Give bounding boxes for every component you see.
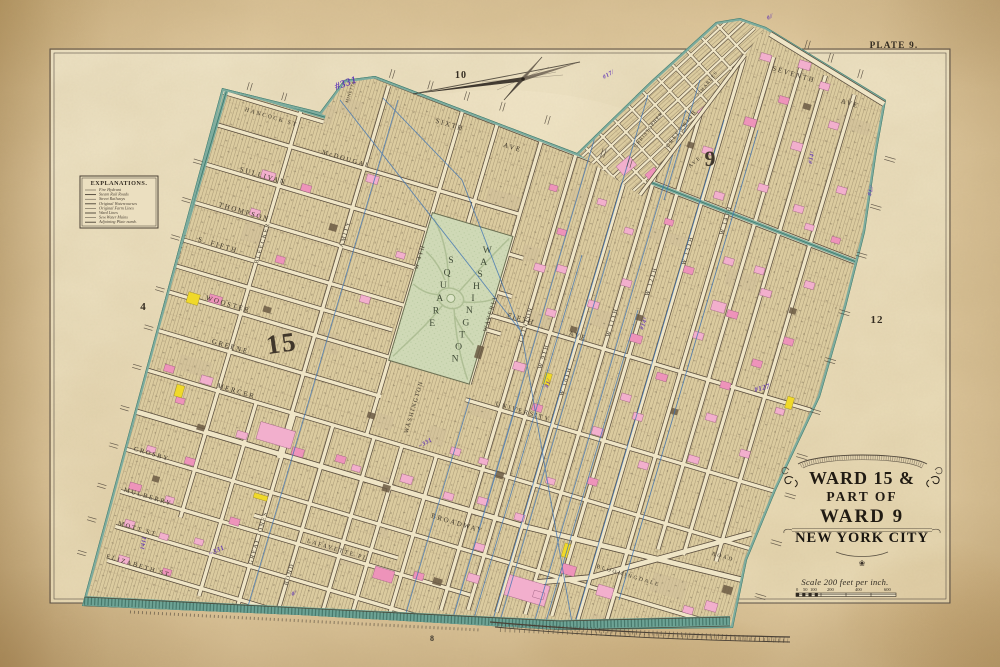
- svg-text:A: A: [436, 293, 443, 304]
- svg-text:❀: ❀: [859, 559, 866, 568]
- svg-text:100: 100: [810, 587, 818, 592]
- svg-text:N: N: [466, 305, 473, 316]
- svg-text:U: U: [440, 280, 447, 291]
- svg-text:N: N: [452, 354, 459, 365]
- svg-text:O: O: [455, 341, 462, 352]
- svg-text:600: 600: [884, 587, 892, 592]
- svg-text:A: A: [480, 257, 487, 268]
- svg-text:S: S: [448, 255, 453, 266]
- svg-text:WARD 9: WARD 9: [820, 506, 904, 527]
- svg-text:400: 400: [855, 587, 863, 592]
- svg-text:G: G: [462, 317, 469, 328]
- svg-text:T: T: [459, 329, 465, 340]
- svg-text:50: 50: [803, 587, 808, 592]
- svg-text:PART OF: PART OF: [826, 489, 897, 504]
- svg-text:12: 12: [871, 314, 884, 326]
- svg-text:200: 200: [827, 587, 835, 592]
- svg-text:WARD 15 &: WARD 15 &: [809, 468, 915, 488]
- svg-text:8: 8: [430, 634, 434, 643]
- svg-text:H: H: [473, 281, 480, 292]
- svg-text:Scale 200 feet per inch.: Scale 200 feet per inch.: [801, 577, 888, 587]
- svg-text:NEW YORK CITY: NEW YORK CITY: [795, 530, 929, 546]
- svg-text:R: R: [433, 306, 440, 317]
- svg-text:Adjoining Plate numb.: Adjoining Plate numb.: [98, 219, 137, 224]
- svg-text:Q: Q: [444, 268, 451, 279]
- svg-text:EXPLANATIONS.: EXPLANATIONS.: [91, 180, 148, 187]
- svg-text:E: E: [429, 318, 435, 329]
- svg-text:PLATE 9.: PLATE 9.: [870, 40, 919, 50]
- svg-text:I: I: [471, 293, 474, 304]
- svg-text:9: 9: [705, 146, 716, 171]
- svg-text:15: 15: [264, 326, 299, 360]
- svg-text:10: 10: [455, 70, 467, 81]
- svg-text:4: 4: [140, 301, 146, 313]
